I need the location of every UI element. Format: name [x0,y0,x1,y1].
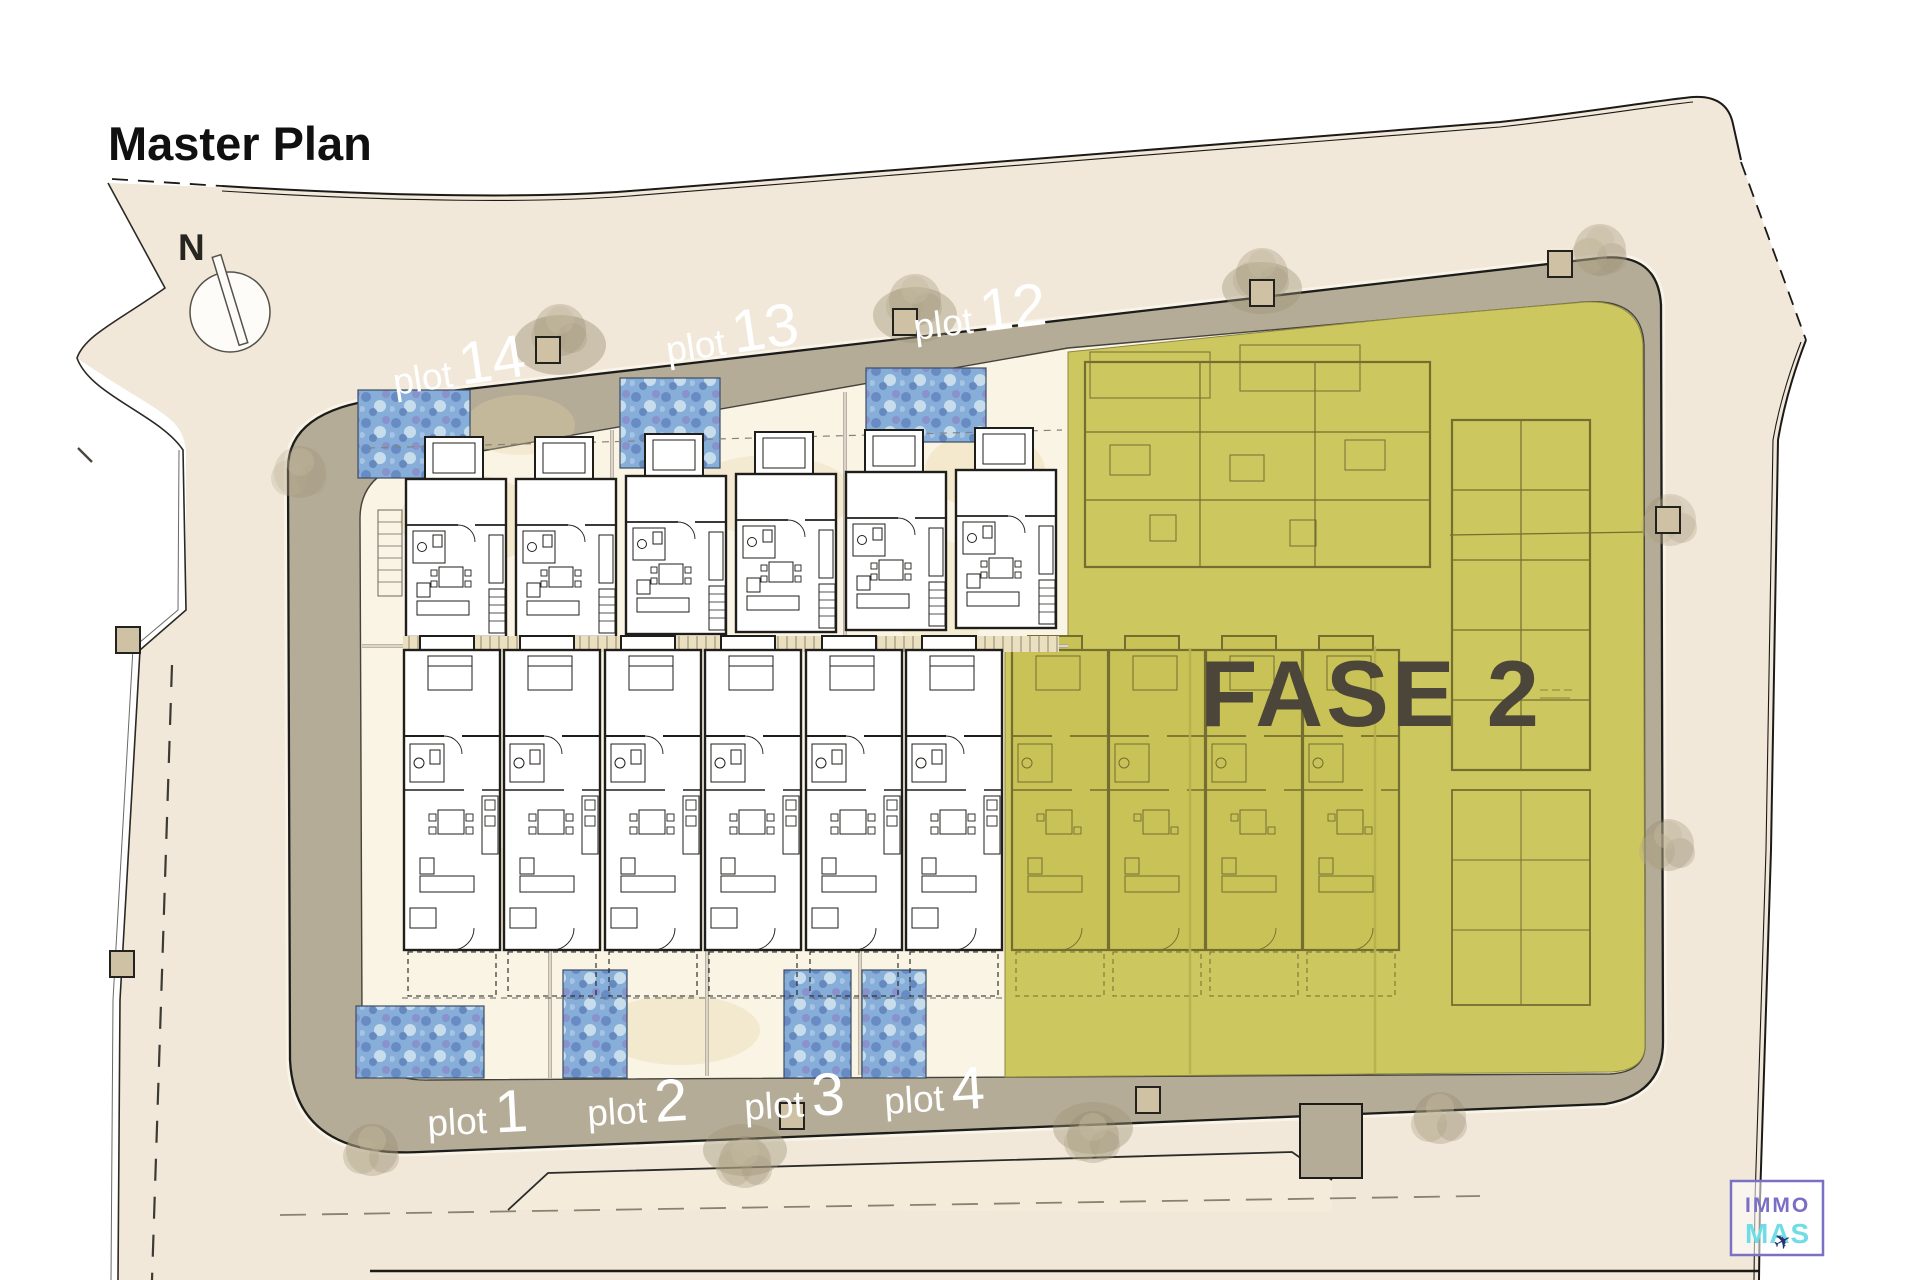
pool-plot1 [356,1006,484,1078]
immomas-logo: IMMO MAS ✈ [1731,1181,1823,1256]
pool-plot4 [862,970,926,1078]
road-entrance-notch [1300,1104,1362,1178]
master-plan-canvas: N Master Plan FASE 2 plot14 plot13 plot1… [0,0,1920,1280]
page-title: Master Plan [108,117,372,170]
logo-immo-text: IMMO [1745,1194,1810,1217]
road-tick-mark [78,448,92,462]
pool-plot2 [563,970,627,1078]
fase2-label: FASE 2 [1200,641,1542,746]
compass-north-label: N [178,227,205,268]
site-plan-drawing: N Master Plan FASE 2 plot14 plot13 plot1… [0,0,1920,1280]
